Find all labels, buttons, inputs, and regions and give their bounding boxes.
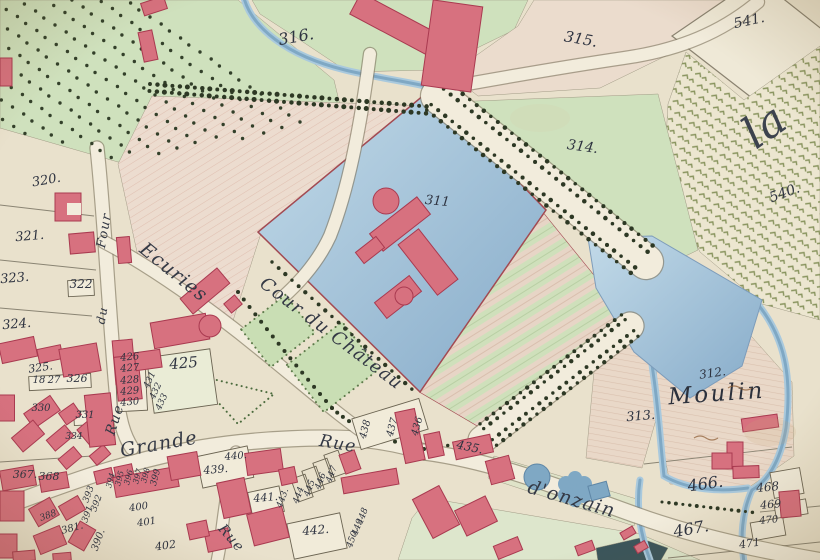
paper-effects-layer [0, 0, 820, 560]
map-viewport: EcuriesCour du ChâteauFourduRueGrandeRue… [0, 0, 820, 560]
vignette-overlay [0, 0, 820, 560]
map-canvas: EcuriesCour du ChâteauFourduRueGrandeRue… [0, 0, 820, 560]
